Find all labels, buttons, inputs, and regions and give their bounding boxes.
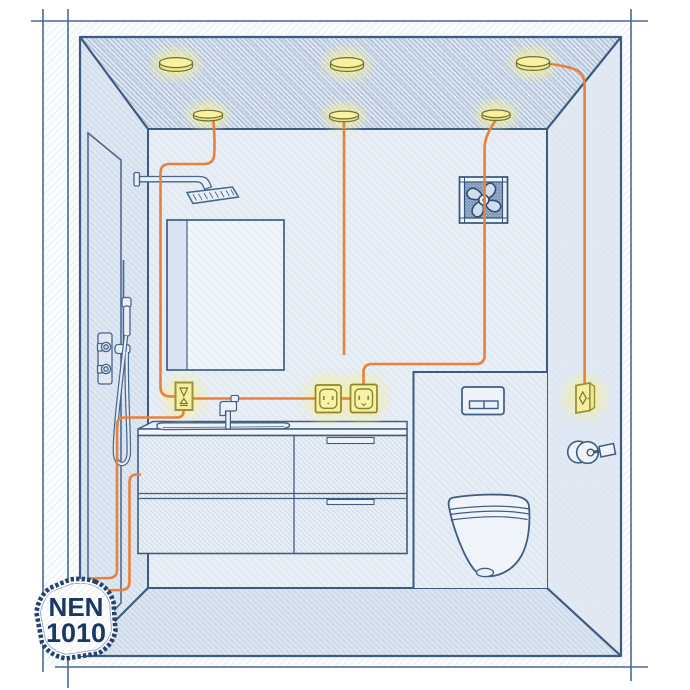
- svg-text:1010: 1010: [46, 618, 106, 648]
